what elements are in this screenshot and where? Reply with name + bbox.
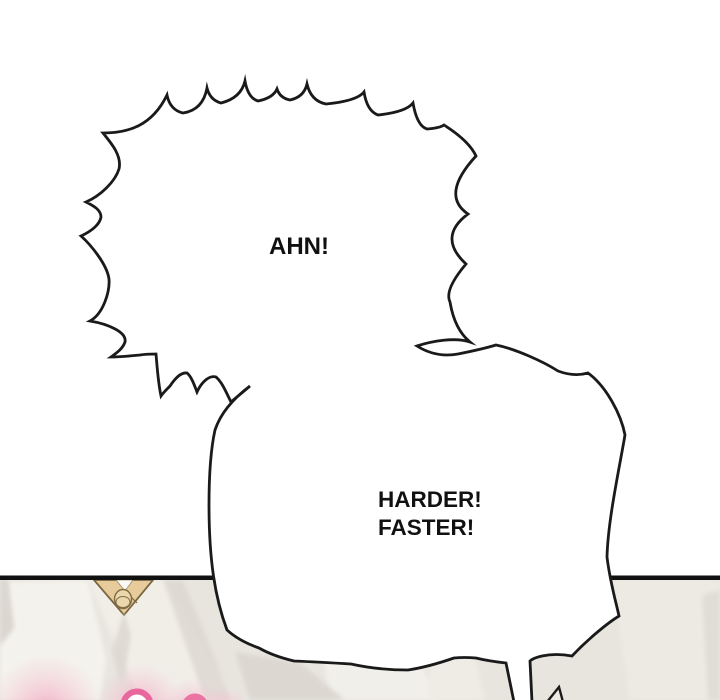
svg-text:AHN!: AHN! bbox=[269, 233, 329, 260]
svg-text:FASTER!: FASTER! bbox=[378, 515, 474, 540]
svg-text:HARDER!: HARDER! bbox=[378, 487, 482, 512]
